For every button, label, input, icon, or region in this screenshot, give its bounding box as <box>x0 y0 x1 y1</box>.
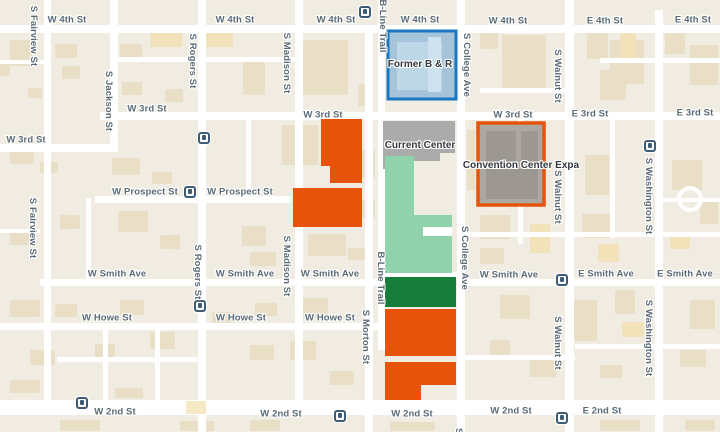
street-label: S Walnut St <box>552 316 562 370</box>
street-label: W 3rd St <box>493 110 532 120</box>
street-label: E Smith Ave <box>578 269 634 279</box>
street-label: W 4th St <box>401 15 440 25</box>
street-label: E 3rd St <box>677 108 714 118</box>
street-label: S Rogers St <box>192 245 202 300</box>
street-label: W 2nd St <box>490 406 531 416</box>
street-label: E 3rd St <box>572 109 609 119</box>
street-label: S College Ave <box>459 226 469 290</box>
street-label: W Prospect St <box>207 187 273 197</box>
street-label: S Fairview St <box>27 198 37 258</box>
street-label: W 4th St <box>48 15 87 25</box>
street-label: W Howe St <box>216 313 266 323</box>
street-label: W Smith Ave <box>480 270 538 280</box>
poi-label-former-b-r: Former B & R <box>388 60 452 70</box>
street-label: W 3rd St <box>303 110 342 120</box>
street-label: W 4th St <box>216 15 255 25</box>
street-label: E 4th St <box>587 16 623 26</box>
street-label: S Washington St <box>643 158 653 235</box>
street-label: S Madison St <box>281 33 291 94</box>
street-label: B-Line Trail <box>377 0 387 52</box>
street-label: W Howe St <box>305 313 355 323</box>
street-label: W Smith Ave <box>301 269 359 279</box>
street-label: S Fairview St <box>28 6 38 66</box>
street-label: S Madison St <box>281 236 291 297</box>
street-label: S College Ave <box>453 428 463 432</box>
street-label: S Rogers St <box>187 34 197 89</box>
street-label: W Smith Ave <box>216 269 274 279</box>
street-label: W Prospect St <box>112 187 178 197</box>
street-label: E 2nd St <box>583 406 622 416</box>
street-label: W Howe St <box>82 313 132 323</box>
street-label: W 2nd St <box>391 409 432 419</box>
street-label: E Smith Ave <box>657 269 713 279</box>
street-label: S Washington St <box>643 300 653 377</box>
map-canvas[interactable]: W 4th StW 4th StW 4th StW 4th StW 4th St… <box>0 0 720 432</box>
street-label: W Smith Ave <box>88 269 146 279</box>
poi-label-convention-center-expansion: Convention Center Expa <box>463 161 579 171</box>
street-label: S Jackson St <box>103 71 113 131</box>
street-label: W 4th St <box>317 15 356 25</box>
street-label: E 4th St <box>675 15 711 25</box>
street-label: B-Line Trail <box>375 252 385 305</box>
street-label: W 3rd St <box>6 135 45 145</box>
street-label: S Morton St <box>360 310 370 364</box>
labels-layer: W 4th StW 4th StW 4th StW 4th StW 4th St… <box>0 0 720 432</box>
street-label: W 3rd St <box>127 104 166 114</box>
street-label: W 2nd St <box>260 409 301 419</box>
street-label: W 4th St <box>489 16 528 26</box>
street-label: S College Ave <box>461 33 471 97</box>
street-label: S Walnut St <box>552 170 562 224</box>
poi-label-current-center: Current Center <box>385 141 456 151</box>
street-label: W 2nd St <box>94 407 135 417</box>
street-label: S Walnut St <box>552 49 562 103</box>
